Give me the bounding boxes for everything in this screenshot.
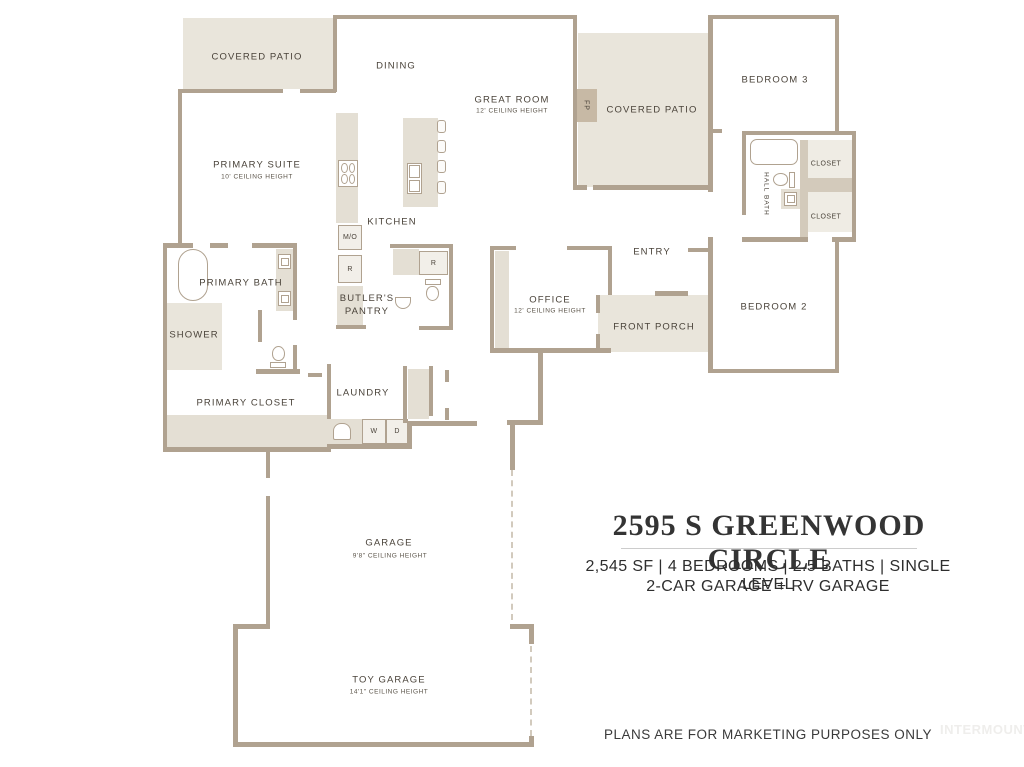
wall [742, 133, 746, 215]
wall [233, 624, 238, 747]
room-label-garage: GARAGE [365, 538, 412, 549]
wall [407, 421, 412, 449]
wall [179, 89, 283, 93]
room-fill [808, 178, 856, 192]
wall [266, 452, 270, 478]
wall [742, 131, 856, 135]
wall [538, 352, 543, 425]
wall [233, 742, 534, 747]
vanity-sink-icon [784, 192, 797, 206]
wall [327, 444, 412, 449]
refrigerator-box: R [338, 255, 362, 283]
wall [327, 364, 331, 419]
wall [573, 15, 577, 190]
fireplace-marker: FP [575, 89, 597, 122]
wall [252, 243, 297, 248]
bar-stool-icon [437, 140, 446, 153]
wall [256, 369, 300, 374]
toilet-icon [773, 171, 796, 188]
wall [403, 366, 407, 423]
ceiling-height-label: 9'8" CEILING HEIGHT [353, 553, 427, 560]
room-label-covered-patio-left: COVERED PATIO [211, 52, 302, 63]
vanity-sink-icon [278, 291, 291, 306]
room-label-toy-garage: TOY GARAGE [352, 675, 425, 686]
wall [293, 243, 297, 320]
bar-stool-icon [437, 160, 446, 173]
wall [688, 248, 708, 252]
wall [510, 425, 515, 470]
floor-plan: FP M/O R R W D COVERED [0, 0, 1024, 767]
wall [852, 135, 856, 241]
room-label-office: OFFICE [529, 295, 570, 306]
ceiling-height-label: 12' CEILING HEIGHT [476, 108, 548, 115]
wall [708, 237, 713, 373]
room-fill [495, 251, 509, 348]
wall [308, 373, 322, 377]
dryer-label: D [394, 428, 399, 435]
utility-sink-icon [333, 423, 351, 440]
room-label-hall-bath: HALL BATH [763, 172, 770, 216]
bar-stool-icon [437, 120, 446, 133]
room-fill [808, 140, 852, 178]
wall [445, 370, 449, 382]
wall [178, 89, 182, 246]
refrigerator-label: R [347, 266, 352, 273]
wall [300, 89, 336, 93]
wall [163, 447, 331, 452]
refrigerator-box-2: R [419, 251, 448, 275]
wall [655, 291, 688, 296]
marketing-disclaimer: PLANS ARE FOR MARKETING PURPOSES ONLY [568, 727, 968, 742]
title-divider [621, 548, 917, 549]
ceiling-height-label: 14'1" CEILING HEIGHT [350, 689, 429, 696]
room-label-closet-upper: CLOSET [811, 161, 841, 168]
wall [835, 237, 839, 373]
floor-plan-page: FP M/O R R W D COVERED [0, 0, 1024, 767]
washer-label: W [371, 428, 378, 435]
wall [163, 243, 167, 452]
wall [742, 237, 808, 242]
wall [835, 15, 839, 135]
intermountain-watermark: INTERMOUNTAIN [940, 722, 1024, 737]
room-label-bedroom-2: BEDROOM 2 [741, 302, 808, 313]
wall [266, 496, 270, 628]
wall [593, 185, 708, 190]
wall [445, 408, 449, 420]
wall [577, 185, 587, 190]
wall [708, 15, 839, 19]
room-label-great-room: GREAT ROOM [474, 95, 549, 106]
wall [333, 15, 337, 92]
garage-door-dashed [511, 470, 513, 620]
wall [596, 334, 600, 352]
wall [596, 295, 600, 313]
wall [163, 243, 193, 248]
room-label-covered-patio-right: COVERED PATIO [606, 105, 697, 116]
wall [529, 736, 534, 747]
microwave-oven-label: M/O [343, 234, 357, 241]
microwave-oven-box: M/O [338, 225, 362, 250]
wall [210, 243, 228, 248]
specs-line-2: 2-CAR GARAGE + RV GARAGE [568, 578, 968, 596]
room-label-dining: DINING [376, 61, 416, 72]
wall [429, 366, 433, 416]
bathtub-icon [750, 139, 798, 165]
room-label-kitchen: KITCHEN [367, 217, 416, 228]
kitchen-sink-icon [407, 163, 422, 194]
room-label-closet-lower: CLOSET [811, 214, 841, 221]
ceiling-height-label: 12' CEILING HEIGHT [514, 308, 586, 315]
room-label-primary-suite: PRIMARY SUITE [213, 160, 301, 171]
room-fill [167, 415, 327, 447]
bar-stool-icon [437, 181, 446, 194]
wall [490, 348, 611, 353]
wall [408, 421, 477, 426]
range-icon [338, 160, 358, 187]
toilet-icon [424, 278, 441, 301]
wall [708, 129, 722, 133]
room-label-laundry: LAUNDRY [337, 388, 390, 399]
wall [293, 345, 297, 371]
wall [608, 246, 612, 295]
wall [336, 325, 366, 329]
garage-door-dashed [530, 646, 532, 736]
room-label-primary-bath: PRIMARY BATH [199, 278, 282, 289]
wall [567, 246, 612, 250]
washer-box: W [362, 419, 386, 444]
wall [708, 15, 713, 192]
wall [449, 245, 453, 330]
wall [258, 310, 262, 342]
room-fill [808, 192, 852, 232]
room-label-shower: SHOWER [169, 330, 218, 341]
wall [390, 244, 453, 248]
room-label-bedroom-3: BEDROOM 3 [742, 75, 809, 86]
vanity-sink-icon [278, 254, 291, 269]
room-fill [393, 249, 419, 275]
fireplace-label: FP [583, 100, 590, 111]
ceiling-height-label: 10' CEILING HEIGHT [221, 174, 293, 181]
refrigerator-label: R [431, 260, 436, 267]
wall [333, 15, 577, 19]
wall [708, 369, 839, 373]
toilet-icon [270, 346, 287, 369]
room-fill [408, 369, 429, 419]
wall [510, 624, 534, 629]
room-label-butlers-pantry: BUTLER'S PANTRY [334, 293, 400, 319]
wall [419, 326, 453, 330]
room-label-front-porch: FRONT PORCH [613, 322, 695, 333]
room-fill [800, 140, 808, 237]
room-label-primary-closet: PRIMARY CLOSET [197, 398, 296, 409]
bathtub-icon [178, 249, 208, 301]
room-label-entry: ENTRY [633, 247, 671, 258]
wall [233, 624, 270, 629]
wall [490, 246, 494, 352]
